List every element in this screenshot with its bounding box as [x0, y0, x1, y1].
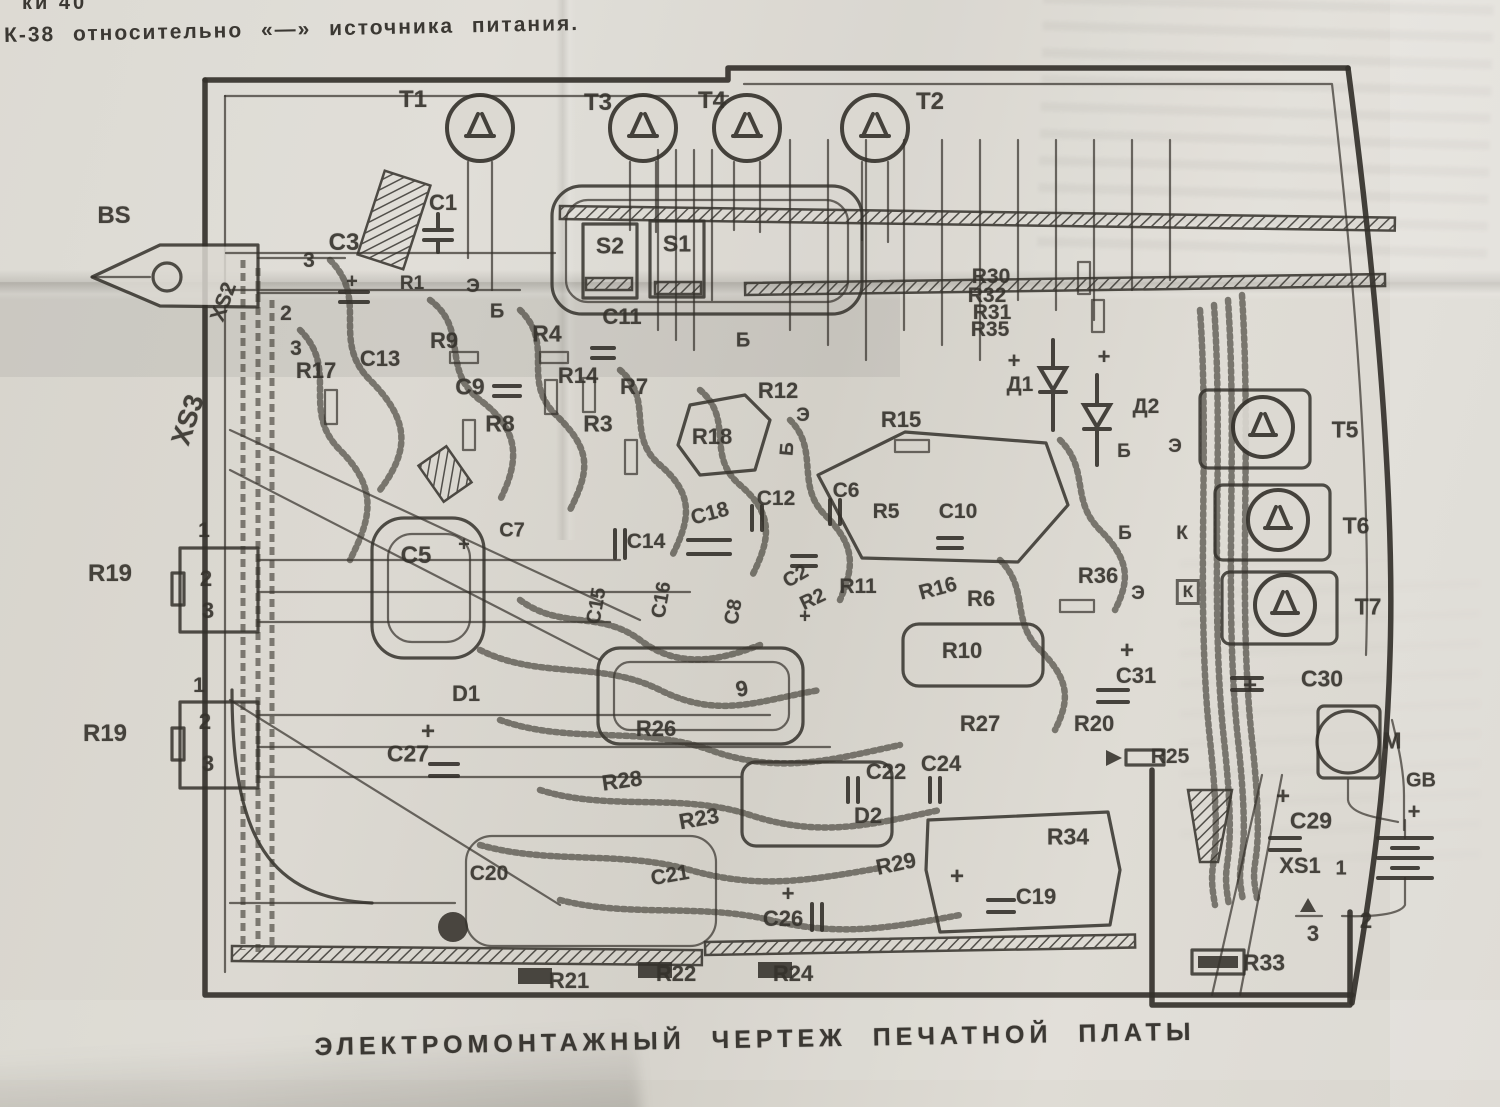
component-label: GB	[1406, 770, 1436, 793]
component-label: R25	[1151, 745, 1190, 769]
component-label: C27	[387, 741, 429, 768]
component-label: +	[1120, 637, 1134, 665]
component-label: 1	[193, 674, 205, 698]
component-label: R24	[773, 961, 813, 987]
component-label: C19	[1016, 884, 1056, 910]
component-label: К	[1176, 579, 1200, 605]
component-label: R4	[532, 321, 561, 348]
component-label: +	[1243, 672, 1257, 700]
pcb-drawing	[0, 0, 1500, 1107]
component-label: R18	[692, 424, 732, 450]
component-label: T7	[1355, 594, 1382, 621]
component-label: BS	[97, 202, 130, 230]
component-label: D1	[452, 681, 480, 707]
component-label: К	[1176, 523, 1188, 545]
component-label: T5	[1332, 417, 1359, 444]
component-label: C20	[470, 862, 509, 886]
component-label: 2	[199, 709, 211, 735]
component-label: R22	[656, 961, 696, 987]
component-label: R17	[296, 358, 336, 384]
component-label: 2	[280, 302, 292, 326]
component-label: C26	[763, 906, 803, 932]
component-label: C30	[1301, 666, 1343, 693]
component-label: R35	[971, 318, 1010, 342]
component-label: 3	[202, 751, 214, 777]
component-label: C8	[720, 597, 747, 626]
component-label: R15	[881, 407, 921, 433]
component-label: +	[1408, 799, 1421, 825]
component-label: 2	[1360, 908, 1372, 934]
component-label: T1	[399, 86, 427, 114]
component-label: C3	[329, 229, 360, 257]
component-label: +	[1276, 783, 1290, 811]
component-label: Б	[1118, 523, 1132, 545]
photographed-document-page: ки 40 К-38 относительно «—» источника пи…	[0, 0, 1500, 1107]
component-label: R36	[1078, 563, 1118, 589]
component-label: C12	[757, 487, 796, 511]
component-label: Э	[1131, 583, 1145, 605]
component-label: R8	[485, 411, 514, 438]
component-label: R5	[873, 500, 900, 524]
component-label: C10	[939, 500, 978, 524]
component-label: +	[1098, 344, 1111, 370]
component-label: R7	[620, 374, 648, 400]
component-label: C7	[499, 520, 525, 543]
component-label: S1	[663, 231, 691, 258]
top-note-line1: ки 40	[22, 0, 87, 15]
component-label: C9	[455, 374, 484, 401]
component-label: 1	[198, 519, 210, 543]
component-label: 2	[200, 566, 212, 592]
component-label: 3	[202, 598, 214, 624]
component-label: C5	[401, 542, 432, 570]
component-label: C24	[921, 751, 961, 777]
component-label: +	[782, 881, 795, 907]
component-label: Б	[1117, 441, 1131, 463]
component-label: T3	[584, 89, 612, 117]
component-label: Б	[490, 301, 504, 324]
component-label: R19	[83, 720, 127, 748]
component-label: R9	[430, 328, 458, 354]
component-label: 1	[1335, 858, 1346, 881]
component-label: T2	[916, 88, 944, 116]
component-label: Б	[776, 441, 799, 457]
component-label: +	[950, 863, 964, 891]
transistor-symbols-top	[447, 95, 908, 290]
component-label: C13	[360, 346, 400, 372]
component-label: R19	[88, 560, 132, 588]
component-label: C29	[1290, 808, 1332, 835]
component-label: R20	[1074, 711, 1114, 737]
component-label: +	[799, 606, 811, 629]
component-label: Э	[796, 405, 810, 427]
component-label: R10	[942, 638, 982, 664]
component-label: M	[1382, 728, 1401, 755]
component-label: R27	[960, 711, 1000, 737]
component-label: Э	[466, 276, 480, 298]
component-label: R12	[758, 378, 798, 404]
component-label: Б	[736, 330, 750, 353]
component-label: R3	[583, 411, 612, 438]
component-label: +	[1008, 348, 1021, 374]
component-label: T4	[698, 87, 726, 115]
component-label: T6	[1343, 513, 1370, 540]
component-label: R1	[400, 273, 424, 295]
component-label: Д2	[1133, 395, 1160, 419]
component-label: R14	[558, 363, 598, 389]
component-label: R33	[1243, 950, 1285, 977]
component-label: R26	[636, 716, 676, 742]
component-label: D2	[854, 803, 882, 829]
component-label: R21	[549, 968, 589, 994]
component-label: C14	[627, 530, 666, 554]
component-label: R11	[839, 575, 876, 599]
component-label: R6	[967, 586, 995, 612]
component-label: R34	[1047, 824, 1089, 851]
component-label: C6	[833, 479, 860, 503]
component-label: R28	[600, 765, 644, 796]
component-label: C31	[1116, 663, 1156, 689]
component-label: Э	[1168, 436, 1182, 458]
component-label: 3	[1307, 921, 1319, 947]
component-label: S2	[596, 233, 624, 260]
component-label: XS1	[1279, 853, 1321, 879]
component-label: Д1	[1007, 373, 1034, 397]
component-label: C11	[602, 304, 641, 330]
component-label: C22	[866, 759, 906, 785]
component-label: 3	[303, 249, 315, 273]
component-label: C1	[429, 190, 457, 216]
component-label: +	[458, 534, 470, 557]
component-label: +	[346, 271, 358, 294]
